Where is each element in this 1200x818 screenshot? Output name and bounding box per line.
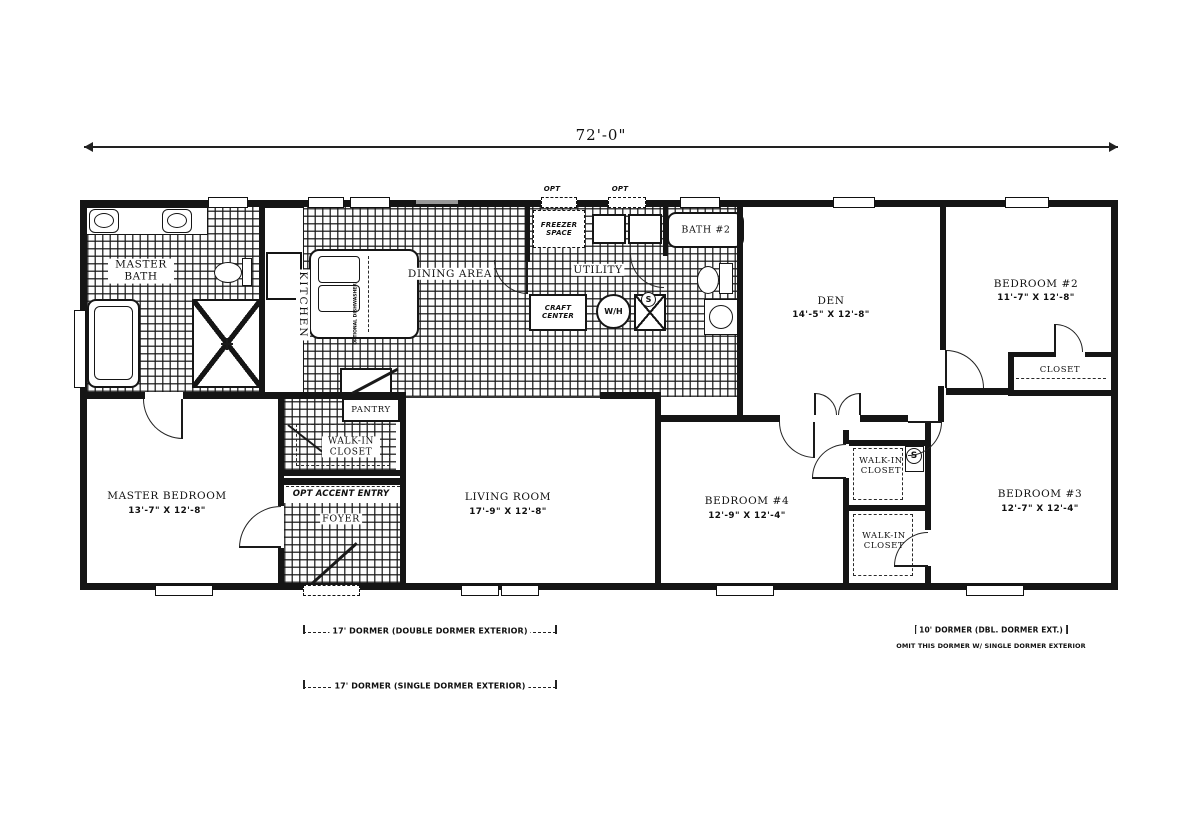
- dryer: [628, 214, 662, 244]
- dormer-bracket-tick: [303, 625, 305, 634]
- door-arc: [143, 399, 183, 439]
- closet-bedroom2-shelf: [1016, 378, 1106, 379]
- wall-closets-bedroom3-b: [925, 566, 931, 584]
- door-arc: [812, 444, 846, 478]
- dining-area-label: DINING AREA: [406, 268, 494, 280]
- dormer-bracket-tick: [1066, 625, 1068, 634]
- overall-width-label: 72'-0": [576, 127, 627, 145]
- bedroom2-label: BEDROOM #2: [994, 278, 1079, 290]
- window: [716, 585, 774, 596]
- door-arc: [946, 350, 984, 388]
- exterior-wall-bottom: [80, 583, 1118, 590]
- wall-utility-west: [525, 207, 530, 262]
- sink-basin: [94, 213, 114, 228]
- bedroom4-dims: 12'-9" X 12'-4": [708, 511, 786, 521]
- bedroom4-label: BEDROOM #4: [705, 495, 790, 507]
- closet-bedroom2-north-w: [1008, 352, 1056, 357]
- floor-plan-canvas: 72'-0": [0, 0, 1200, 818]
- closet-bedroom2-north-e: [1085, 352, 1111, 357]
- closet-bedroom2-west: [1008, 352, 1014, 395]
- exterior-wall-right: [1111, 200, 1118, 590]
- wall-bedroom2-south: [946, 388, 1008, 395]
- island-sink-bowl: [318, 256, 360, 283]
- wall-bedroom4-closets-b: [843, 478, 849, 584]
- door-leaf: [859, 393, 861, 415]
- wall-masterbed-foyer-b: [278, 548, 284, 584]
- closet-bedroom2-south: [1008, 390, 1111, 396]
- dimension-arrow-left: [84, 142, 93, 152]
- door-leaf: [181, 399, 183, 439]
- den-label: DEN: [817, 295, 844, 307]
- dormer-omit-label: OMIT THIS DORMER W/ SINGLE DORMER EXTERI…: [893, 642, 1089, 650]
- door-leaf: [908, 421, 942, 423]
- dormer-single-label: 17' DORMER (SINGLE DORMER EXTERIOR): [331, 682, 528, 691]
- opt-window: [608, 197, 646, 208]
- wall-living-northeast: [600, 392, 661, 399]
- bedroom3-dims: 12'-7" X 12'-4": [1001, 504, 1079, 514]
- master-bath-label: MASTER BATH: [108, 259, 174, 284]
- dimension-arrow-right: [1109, 142, 1118, 152]
- freezer-space-label: FREEZER SPACE: [537, 221, 581, 237]
- window: [1005, 197, 1049, 208]
- wall-under-pantry: [262, 392, 406, 399]
- accent-entry-dashline: [286, 486, 400, 487]
- window: [501, 585, 539, 596]
- sink-basin: [167, 213, 187, 228]
- door-arc: [1055, 324, 1083, 352]
- washer: [592, 214, 626, 244]
- opt-accent-entry-label: OPT ACCENT ENTRY: [291, 490, 392, 500]
- wall-living-bedroom4: [655, 397, 661, 583]
- shower-drain-v: [226, 338, 228, 350]
- door-leaf: [812, 477, 846, 479]
- bathtub-inner: [94, 306, 133, 380]
- wall-den-bedroom2: [940, 207, 946, 350]
- closet-bedroom2-label: CLOSET: [1040, 365, 1080, 375]
- wall-den-west: [737, 207, 743, 422]
- s-marker-circle: S: [641, 292, 656, 307]
- entry-door-opening: [303, 585, 360, 596]
- s-marker-label: S: [646, 295, 652, 304]
- wall-foyer-living: [400, 397, 406, 583]
- toilet: [214, 262, 242, 283]
- wall-hall-den-east: [860, 415, 908, 422]
- wall-bedroom4-north: [661, 415, 780, 422]
- door-leaf: [894, 565, 928, 567]
- sink-basin: [709, 305, 733, 329]
- master-bedroom-dims: 13'-7" X 12'-8": [128, 506, 206, 516]
- den-door-arc-left: [815, 393, 837, 415]
- wall-masterbath-masterbed-w: [87, 392, 145, 399]
- walkin-a-label: WALK-IN CLOSET: [855, 456, 907, 476]
- walkin-b-label: WALK-IN CLOSET: [858, 531, 910, 551]
- dormer-bracket-tick: [555, 680, 557, 689]
- window: [461, 585, 499, 596]
- window: [308, 197, 344, 208]
- craft-center-label: CRAFT CENTER: [535, 304, 581, 320]
- window: [350, 197, 390, 208]
- wall-den-bedroom2-stub: [938, 386, 944, 422]
- wall-utility-bath2: [663, 207, 668, 256]
- optional-dishwasher-label: OPTIONAL DISHWASHER: [354, 283, 359, 345]
- dormer-bracket-tick: [555, 625, 557, 634]
- walkin-master-label: WALK-IN CLOSET: [322, 436, 380, 457]
- overall-dimension-line: [84, 146, 1118, 148]
- opt-window: [541, 197, 577, 208]
- opt-window-band: [416, 200, 458, 204]
- dormer-double-label: 17' DORMER (DOUBLE DORMER EXTERIOR): [329, 627, 530, 636]
- water-heater-label: W/H: [604, 307, 622, 316]
- bedroom3-label: BEDROOM #3: [998, 488, 1083, 500]
- living-room-label: LIVING ROOM: [465, 491, 551, 503]
- den-dims: 14'-5" X 12'-8": [792, 310, 870, 320]
- door-leaf: [814, 393, 816, 415]
- door-leaf: [813, 422, 815, 458]
- door-leaf: [526, 260, 528, 294]
- wall-above-accent-entry: [284, 478, 404, 485]
- wall-masterbath-masterbed-e: [183, 392, 262, 399]
- kitchen-label: KITCHEN: [296, 269, 310, 340]
- exterior-wall-left: [80, 200, 87, 590]
- door-arc: [779, 422, 815, 458]
- toilet-tank: [719, 263, 733, 294]
- living-room-dims: 17'-9" X 12'-8": [469, 507, 547, 517]
- window: [155, 585, 213, 596]
- wall-walkin-master-south: [284, 470, 404, 476]
- bedroom2-dims: 11'-7" X 12'-8": [997, 293, 1075, 303]
- bath2-label: BATH #2: [681, 224, 730, 235]
- door-leaf: [1054, 324, 1056, 352]
- window: [966, 585, 1024, 596]
- window: [833, 197, 875, 208]
- window: [208, 197, 248, 208]
- water-heater: W/H: [596, 294, 631, 329]
- refrigerator: [340, 368, 392, 394]
- window: [680, 197, 720, 208]
- dormer-bracket-tick: [303, 680, 305, 689]
- pantry-label: PANTRY: [351, 405, 391, 415]
- toilet: [697, 266, 719, 294]
- wall-masterbath-kitchen: [259, 207, 264, 397]
- den-door-arc-right: [838, 393, 860, 415]
- wall-between-walkins: [849, 505, 925, 511]
- door-arc: [908, 422, 942, 456]
- toilet-tank: [242, 258, 252, 286]
- window: [74, 310, 86, 388]
- door-arc: [239, 506, 281, 548]
- utility-label: UTILITY: [571, 264, 624, 276]
- master-bedroom-label: MASTER BEDROOM: [107, 490, 227, 502]
- door-leaf: [239, 546, 281, 548]
- wall-masterbed-foyer-a: [278, 397, 284, 506]
- dormer-10-label: 10' DORMER (DBL. DORMER EXT.): [916, 626, 1066, 635]
- opt-window-label: OPT: [612, 185, 628, 193]
- floor-edge-dining-living: [406, 396, 600, 398]
- opt-window-label: OPT: [544, 185, 560, 193]
- door-leaf: [945, 350, 947, 388]
- foyer-label: FOYER: [320, 513, 362, 524]
